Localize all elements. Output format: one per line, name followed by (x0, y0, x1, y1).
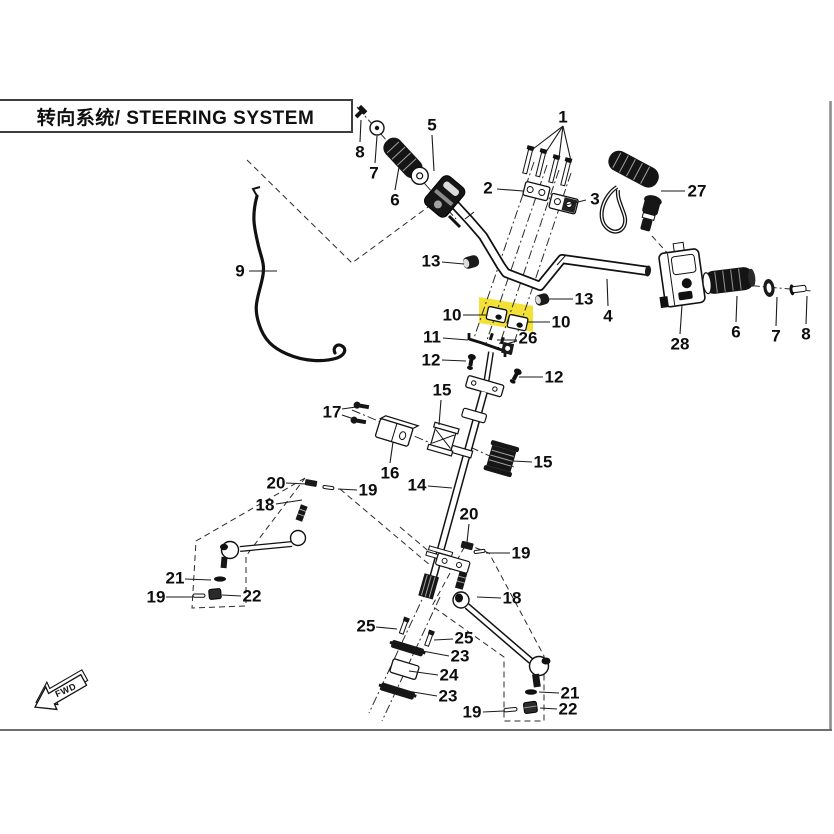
part-label-19: 19 (359, 481, 378, 500)
part-label-10: 10 (552, 313, 571, 332)
leader-line (736, 296, 737, 322)
leader-line (286, 483, 306, 484)
tether-27 (602, 147, 663, 233)
part-label-9: 9 (235, 262, 244, 281)
washer-21-right (525, 689, 537, 695)
part-label-8: 8 (801, 325, 810, 344)
leader-line (477, 597, 501, 598)
part-label-27: 27 (688, 182, 707, 201)
leader-line (467, 524, 469, 542)
part-label-25: 25 (455, 629, 474, 648)
leader-line (432, 135, 434, 171)
clamp-23-lower (378, 682, 418, 701)
right-grip-group (702, 266, 807, 298)
part-label-10: 10 (443, 306, 462, 325)
leader-line (434, 639, 453, 640)
leader-line (540, 708, 557, 709)
part-label-17: 17 (323, 403, 342, 422)
part-label-12: 12 (545, 368, 564, 387)
part-label-26: 26 (519, 329, 538, 348)
lower-clamp-group (378, 617, 435, 701)
sleeve-24 (390, 659, 420, 680)
grip-6-left (380, 134, 433, 189)
fwd-arrow: FWD (28, 667, 94, 717)
part-label-6: 6 (390, 191, 399, 210)
bolt-8-right (789, 283, 807, 296)
part-label-1: 1 (558, 108, 567, 127)
drawing-frame (0, 101, 832, 730)
leader-line (506, 341, 517, 344)
bolt-8-left (353, 105, 368, 120)
part-label-13: 13 (422, 252, 441, 271)
cap-13-right (534, 292, 550, 306)
leader-line (342, 407, 356, 409)
ring-7-right (762, 278, 775, 297)
leader-line (185, 579, 211, 580)
part-label-23: 23 (439, 687, 458, 706)
bolt-25-right (424, 630, 435, 647)
part-label-4: 4 (603, 307, 613, 326)
pin-19-center (474, 549, 485, 554)
part-label-16: 16 (381, 464, 400, 483)
part-label-25: 25 (357, 617, 376, 636)
leader-line (375, 136, 377, 163)
steering-column (418, 352, 504, 600)
part-label-15: 15 (534, 453, 553, 472)
leader-line (680, 305, 682, 334)
part-label-24: 24 (440, 666, 459, 685)
leader-line (428, 486, 452, 488)
washer-21-left (214, 576, 226, 581)
part-label-21: 21 (166, 569, 185, 588)
clamp-2 (523, 181, 551, 201)
part-label-28: 28 (671, 335, 690, 354)
part-label-2: 2 (483, 179, 492, 198)
part-label-22: 22 (243, 587, 262, 606)
clip-20-center (460, 541, 473, 551)
leader-line (533, 126, 563, 149)
leader-line (806, 296, 807, 324)
clamp-bracket-11 (469, 333, 505, 357)
pin-19-bottom (504, 707, 517, 712)
pin-19-upper (323, 485, 334, 490)
part-label-11: 11 (423, 328, 441, 347)
leader-line (497, 189, 523, 191)
part-label-7: 7 (771, 327, 780, 346)
part-label-14: 14 (408, 476, 427, 495)
construction-lines (192, 107, 812, 721)
bolt-12-left (466, 353, 477, 370)
part-label-12: 12 (422, 351, 441, 370)
leader-line (539, 692, 559, 693)
part-label-3: 3 (590, 190, 599, 209)
leader-line (563, 126, 571, 161)
bolt-12-right (508, 367, 523, 385)
page: 转向系统/ STEERING SYSTEM (0, 0, 834, 834)
part-label-8: 8 (355, 143, 364, 162)
leader-line (442, 262, 464, 264)
steering-diagram: FWD 123456789272867813131010261112121517… (0, 0, 834, 834)
leader-line (222, 595, 241, 596)
throttle-lever (449, 216, 460, 227)
bushing-15-right (483, 440, 519, 478)
leader-line (276, 500, 302, 504)
washer-7-left (370, 121, 384, 135)
leader-line (443, 338, 468, 340)
part-label-22: 22 (559, 700, 578, 719)
leader-line (395, 167, 399, 190)
throttle-cable (253, 187, 345, 361)
leader-line (442, 360, 466, 361)
leader-line (776, 297, 777, 326)
leader-line (390, 442, 393, 463)
nut-22-right (523, 701, 537, 714)
leader-line (513, 461, 532, 462)
part-label-5: 5 (427, 116, 436, 135)
bracket-16 (375, 415, 418, 448)
part-label-19: 19 (147, 588, 166, 607)
leader-line (360, 120, 361, 142)
part-label-15: 15 (433, 381, 452, 400)
clamp-3 (549, 193, 579, 214)
leader-line (439, 400, 441, 425)
part-label-19: 19 (463, 703, 482, 722)
switch-housing-28 (652, 240, 705, 308)
leader-line (342, 415, 354, 419)
part-label-6: 6 (731, 323, 740, 342)
bolt-25-left (398, 617, 409, 635)
leader-line (376, 627, 397, 629)
cap-13-left (462, 254, 481, 270)
nut-22-left (209, 588, 222, 599)
part-label-18: 18 (503, 589, 522, 608)
clamp-23-upper (389, 639, 427, 657)
part-label-13: 13 (575, 290, 594, 309)
part-label-20: 20 (460, 505, 479, 524)
part-label-18: 18 (256, 496, 275, 515)
leader-line (607, 279, 608, 306)
part-label-23: 23 (451, 647, 470, 666)
part-label-20: 20 (267, 474, 286, 493)
clip-20-left (305, 479, 318, 487)
part-label-7: 7 (369, 164, 378, 183)
grip-6-right (702, 266, 757, 295)
pin-19-left (193, 594, 205, 597)
part-label-19: 19 (512, 544, 531, 563)
leader-line (483, 711, 504, 712)
